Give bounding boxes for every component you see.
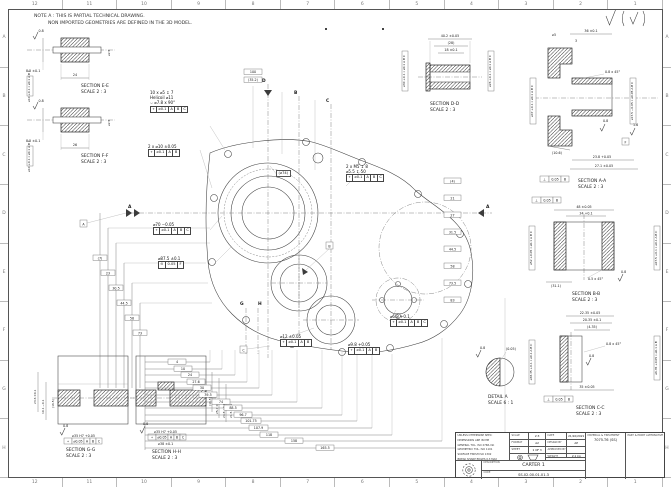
sheet-label: SHEET — [510, 447, 528, 453]
fcf-cell: B — [305, 340, 310, 346]
design-by-value: AP — [566, 440, 585, 446]
grid-label: 7 — [281, 478, 336, 487]
dim-label: 44.5 — [449, 247, 456, 251]
dim-label: (⌀74) — [276, 170, 291, 177]
drawing-note: NOTE A : THIS IS PARTIAL TECHNICAL DRAWI… — [34, 13, 192, 28]
grid-label: 12 — [8, 0, 63, 9]
grid-label: 6 — [335, 0, 390, 9]
callout-small-bore: ⌀6.8 +0.1 ⌖⌀0.1ABC — [390, 314, 428, 327]
dim-label: 73.5 — [449, 281, 456, 285]
tolerance-notes: UNLESS OTHERWISE SPEC: DIMENSIONS ARE IN… — [456, 433, 510, 461]
grid-labels-top: 121110987654321 — [8, 0, 663, 9]
fcf-label: ⌀17.5 −0.05 ⌖ ⌀0.05 A B C — [630, 82, 634, 120]
callout-holes-pattern: 10 x ⌀5 ↧ 7 Helicoil ⌀11 ⌵ ⌀7.8 x 90° ⌖⌀… — [150, 90, 188, 113]
section-caption: SECTION A-A — [578, 178, 606, 184]
dim-label: 20.35 ±0.1 — [583, 318, 602, 322]
dim-label: 0.5 x 45° — [588, 277, 603, 281]
format-value: A2 — [528, 440, 545, 446]
grid-label: 9 — [172, 0, 227, 9]
cut-letter: A — [486, 204, 490, 210]
approved-by-label: APPROVED BY — [546, 447, 566, 453]
datum-target-square — [325, 28, 327, 30]
feature-control-frame: ⌖⌀0.1AB — [348, 347, 380, 355]
callout-dowel-holes: 2 x ⌀10 ±0.05 ⌖⌀0.1AB — [148, 144, 180, 157]
scale-label: SCALE — [510, 433, 528, 439]
section-scale: SCALE 2 : 3 — [578, 184, 604, 190]
cut-letter: C — [326, 98, 329, 104]
weight-label: WEIGHT — [546, 454, 566, 457]
part-outline — [206, 139, 473, 356]
dim-label: 23.8 +0.05 — [593, 155, 612, 159]
dim-label: 22.35 ±0.05 — [580, 311, 601, 315]
grid-label: 9 — [172, 478, 227, 487]
dim-label: 73 — [138, 331, 142, 335]
fcf-cell: ⌀0.1 — [287, 340, 299, 346]
scale-value: 2:3 — [528, 433, 545, 439]
cut-asm-cell: CUT ASM — [546, 458, 586, 461]
section-caption: SECTION C-C — [576, 405, 604, 411]
grid-label: B — [0, 68, 8, 127]
dim-label: 27.6 — [192, 380, 199, 384]
grid-label: E — [0, 244, 8, 303]
fcf-cell: C — [185, 228, 191, 234]
fcf-cell: 0.05 — [166, 262, 178, 268]
fcf-label: ⌀10 +0.1 ⌖ ⌀0.1 A B C — [27, 140, 31, 172]
dim-label: 24 — [188, 373, 192, 377]
grid-label: 10 — [117, 478, 172, 487]
callout-ref-diameter: (⌀74) — [276, 170, 291, 177]
dim-label: 10.1 −0.1 — [41, 399, 45, 414]
dim-label: 107.9 — [254, 426, 263, 430]
roughness-label: 0.8 — [621, 270, 626, 274]
grid-label: G — [0, 361, 8, 420]
roughness-label: 1.6 — [633, 123, 638, 127]
dim-label: 4 — [176, 360, 178, 364]
grid-labels-left: ABCDEFGH — [0, 9, 8, 478]
dim-label: 83 — [450, 298, 454, 302]
dim-label: 23 — [106, 271, 110, 275]
grid-label: 10 — [117, 0, 172, 9]
grid-label: A — [0, 9, 8, 68]
dim-label: 30 — [200, 386, 204, 390]
title-block: UNLESS OTHERWISE SPEC: DIMENSIONS ARE IN… — [455, 432, 665, 478]
dim-label: (7) — [98, 256, 103, 260]
grid-label: 8 — [226, 0, 281, 9]
fcf-cell: 0.05 — [551, 178, 558, 182]
sheet-cell: SHEET1 OF 3 — [510, 447, 546, 454]
fcf-cell: ⌀0.1 — [160, 228, 172, 234]
roughness-label: 0.8 — [589, 354, 594, 358]
approved-by-cell: APPROVED BY — [546, 447, 586, 454]
dim-label: 48 ±0.05 — [576, 205, 591, 209]
dim-label: 27.1 ±0.05 — [595, 164, 614, 168]
cut-letter: G — [240, 301, 244, 307]
dim-label: 27 — [450, 213, 454, 217]
first-angle-projection-icon — [514, 454, 542, 461]
dim-label: 21 — [450, 196, 454, 200]
grid-label: 1 — [608, 478, 663, 487]
grid-label: D — [0, 185, 8, 244]
datum-flag: F — [625, 141, 627, 145]
fcf-cell: C — [182, 107, 188, 113]
grid-labels-bottom: 121110987654321 — [8, 478, 663, 487]
dim-label: 100 — [250, 70, 256, 74]
section-aa-view: 36 ±0.1 ⌀5 3 0.8 x 45° ⌀47 +0.1 ⌖ ⌀0.1 A… — [526, 20, 666, 192]
fcf-cell: ⌀0.1 — [155, 150, 167, 156]
centerlines-and-cutting-planes — [130, 84, 492, 358]
format-cell: FORMATA2 — [510, 440, 546, 447]
dim-label: (16.5) — [51, 399, 55, 408]
dim-label: 88.5 — [229, 406, 236, 410]
code-cell: CODE SS.02.00.01.01.3 — [482, 471, 586, 479]
code-value: SS.02.00.01.01.3 — [482, 473, 585, 477]
grid-label: 4 — [445, 478, 500, 487]
fcf-cell: ⌀0.1 — [355, 348, 367, 354]
dim-label: 3 — [575, 39, 577, 43]
cut-letter: H — [258, 301, 262, 307]
dim-label: (35.2) — [248, 78, 258, 82]
fcf-cell: C — [422, 320, 428, 326]
dim-label: 39.5 — [204, 393, 211, 397]
dim-label: 23.6 ±0.1 — [33, 389, 37, 404]
grid-label: 8 — [226, 478, 281, 487]
fcf-cell: ⌀0.1 — [397, 320, 409, 326]
section-caption: SECTION B-B — [572, 291, 600, 297]
dim-label: 10 — [181, 367, 185, 371]
roughness-label: 0.8 — [39, 29, 44, 33]
datum-target-square — [382, 28, 384, 30]
feature-control-frame: ⌖⌀0.1ABC — [346, 174, 384, 182]
feature-control-frame: ⌖⌀0.1AB — [280, 339, 312, 347]
dim-label: 101.75 — [245, 419, 257, 423]
dim-label: 40.2 ±0.05 — [441, 34, 460, 38]
cut-letter: D — [262, 78, 266, 84]
callout-bore-98: ⌀9.8 +0.05 ⌖⌀0.1AB — [348, 342, 380, 355]
left-dimension-cascade: (7) 23 30.5 44.5 58 73 — [93, 213, 212, 388]
drawing-sheet: 121110987654321 121110987654321 ABCDEFGH… — [0, 0, 671, 487]
dim-label: (31.1) — [551, 284, 561, 288]
fcf-cell: ⊙ — [159, 262, 166, 268]
material-value: 7075-T6 (SS) — [586, 438, 625, 442]
feature-control-frame: ⌖⌀0.1AB — [148, 149, 180, 157]
dim-label: 58 — [130, 316, 134, 320]
scale-cell: SCALE2:3 — [510, 433, 546, 440]
right-dimension-column: (4) 21 27 31.5 44.5 58 73.5 83 — [444, 178, 461, 302]
main-view: A A B C D G H A B C 100 (35.2) (7) 2 — [60, 58, 540, 460]
note-line-1: NOTE A : THIS IS PARTIAL TECHNICAL DRAWI… — [34, 13, 192, 20]
fcf-cell: C — [378, 175, 384, 181]
approved-by-value — [566, 447, 585, 453]
projection-symbol-cell — [510, 454, 546, 461]
roughness-label: 0.8 — [603, 119, 608, 123]
grid-label: 12 — [8, 478, 63, 487]
gear-logo-icon — [461, 462, 477, 478]
dim-label: (10.6) — [552, 151, 562, 155]
date-cell: DATE21/10/2021 — [546, 433, 586, 440]
grid-label: 2 — [554, 478, 609, 487]
fcf-cell: B — [373, 348, 378, 354]
feature-control-frame: ⌖⌀0.1ABC — [150, 106, 188, 114]
bottom-dimension-cascade: 4 10 24 27.6 30 39.5 74 88.5 96.7 101.75… — [145, 298, 505, 450]
dim-label: 118 — [266, 433, 272, 437]
fcf-cell: ⌀0.1 — [353, 175, 365, 181]
fcf-cell: 0.05 — [555, 398, 562, 402]
cut-letter: B — [294, 90, 298, 96]
dim-label: 96.7 — [239, 413, 246, 417]
dim-label: 31.5 — [449, 230, 456, 234]
dia-label: ⌀2.5 — [107, 50, 111, 56]
alternative-label: PART & PRINT ALTERNATIVE — [626, 433, 666, 437]
feature-control-frame: ⌖⌀0.1ABC — [390, 319, 428, 327]
section-scale: SCALE 2 : 3 — [572, 297, 598, 303]
grid-label: 4 — [445, 0, 500, 9]
callout-tapped-holes: 2 x M5 ↧ 8 ⌀5.5 ↧ 50 ⌖⌀0.1ABC — [346, 164, 384, 182]
company-logo — [456, 461, 482, 479]
dim-label: 36 ±0.1 — [584, 29, 597, 33]
dim-label: ⌀5 — [552, 33, 556, 37]
dim-label: (28) — [448, 41, 455, 45]
grid-label: 5 — [390, 0, 445, 9]
callout-bore-12: ⌀12 ±0.05 ⌖⌀0.1AB — [280, 334, 312, 347]
grid-label: F — [0, 302, 8, 361]
dim-label: 165.5 — [320, 446, 329, 450]
roughness-label: 0.8 — [39, 99, 44, 103]
dim-label: 30.5 — [112, 286, 119, 290]
design-by-label: DESIGN BY — [546, 440, 566, 446]
feature-control-frame: ⊙0.05F — [158, 261, 184, 269]
dim-label: 44.5 — [120, 301, 127, 305]
material-cell: MATERIAL & TREATMENT 7075-T6 (SS) — [586, 433, 626, 479]
callout-leaders — [200, 126, 396, 349]
dim-label: 18 ±0.1 — [444, 48, 457, 52]
grid-label: 11 — [63, 0, 118, 9]
grid-label: 11 — [63, 478, 118, 487]
fcf-label: ⌀47.5 +0.1 ⌖ ⌀0.1 A B C — [654, 231, 658, 266]
dim-label: 35 ±0.05 — [579, 385, 594, 389]
design-by-cell: DESIGN BYAP — [546, 440, 586, 447]
section-cc-view: 22.35 ±0.05 20.35 ±0.1 (4.35) 0.8 x 45° … — [526, 306, 666, 418]
fcf-cell: B — [173, 150, 178, 156]
description-cell: DESCRIPTION CARTER 1 — [482, 461, 586, 471]
note-line-2: NON IMPORTED GEOMETRIES ARE DEFINED IN T… — [34, 20, 192, 27]
callout-bolt-circle: ⌀87.5 ±0.1 ⊙0.05F — [158, 256, 184, 269]
format-label: FORMAT — [510, 440, 528, 446]
dim-label: 0.8 x 45° — [606, 342, 621, 346]
section-scale: SCALE 2 : 3 — [576, 411, 602, 417]
grid-label: 5 — [390, 478, 445, 487]
date-label: DATE — [546, 433, 566, 439]
grid-label: 7 — [281, 0, 336, 9]
material-label: MATERIAL & TREATMENT — [586, 433, 625, 437]
section-bb-view: ⟂ 0.05 B 48 ±0.05 34 +0.1 ⌀52 +0.05 ⌖ ⌀0… — [526, 194, 666, 306]
top-dimension-cascade: 100 (35.2) — [244, 69, 315, 170]
dim-label: 58 — [450, 264, 454, 268]
callout-main-bore: ⌀70 −0.05 ⌖⌀0.1ABC — [153, 222, 191, 235]
grid-label: C — [0, 126, 8, 185]
fcf-label: ⌀6.35 +0.05 ⌖ ⌀0.1 A B — [654, 341, 658, 375]
sheet-value: 1 OF 3 — [528, 447, 545, 453]
dim-label: (4.35) — [587, 325, 597, 329]
fcf-cell: ⌀0.1 — [157, 107, 169, 113]
grid-label: 3 — [499, 478, 554, 487]
dim-label: 34 +0.1 — [579, 212, 592, 216]
feature-control-frame: ⌖⌀0.1ABC — [153, 227, 191, 235]
dim-label: 158 — [291, 439, 297, 443]
alternative-cell: PART & PRINT ALTERNATIVE — [626, 433, 666, 479]
dim-label: 74 — [219, 400, 223, 404]
grid-label: 3 — [499, 0, 554, 9]
dim-label: (4) — [450, 179, 455, 183]
fcf-cell: 0.05 — [543, 199, 550, 203]
cut-letter: A — [128, 204, 132, 210]
weight-value: 2.1 kg — [566, 454, 585, 457]
dim-label: 0.8 x 45° — [605, 70, 620, 74]
grid-label: H — [0, 419, 8, 478]
fcf-cell: F — [178, 262, 183, 268]
date-value: 21/10/2021 — [566, 433, 585, 439]
grid-label: 6 — [335, 478, 390, 487]
